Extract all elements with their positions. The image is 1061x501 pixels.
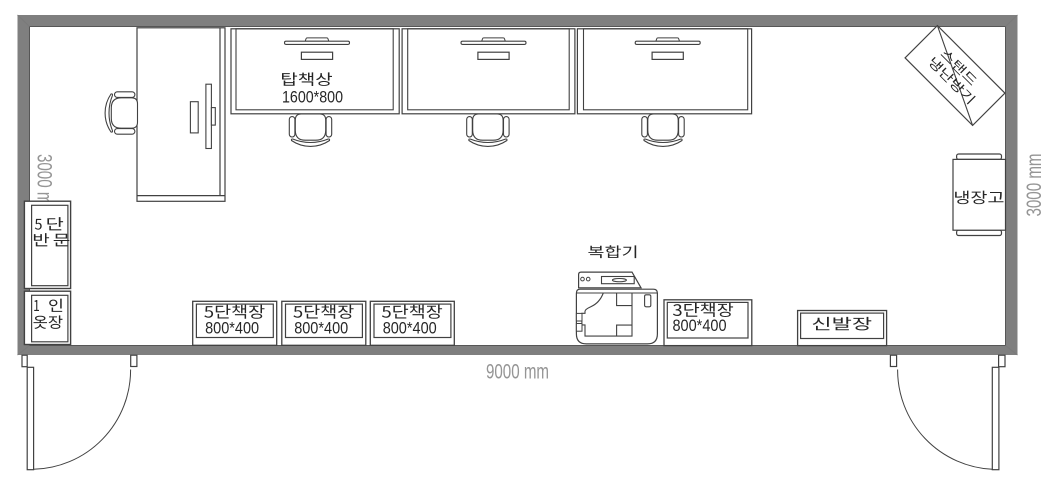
svg-text:800*400: 800*400 bbox=[383, 318, 437, 337]
svg-text:800*400: 800*400 bbox=[205, 318, 259, 337]
svg-text:9000 mm: 9000 mm bbox=[486, 361, 549, 384]
svg-text:800*400: 800*400 bbox=[673, 316, 727, 335]
svg-text:800*400: 800*400 bbox=[294, 318, 348, 337]
svg-text:1600*800: 1600*800 bbox=[282, 88, 343, 106]
svg-text:3000 mm: 3000 mm bbox=[1023, 154, 1046, 217]
